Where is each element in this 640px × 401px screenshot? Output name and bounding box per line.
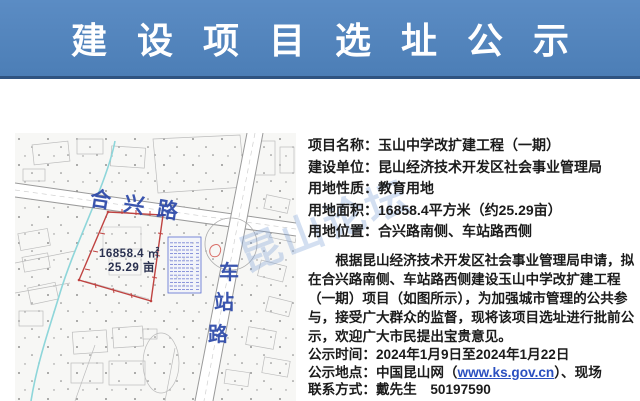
footer-value: 中国昆山网（ — [376, 365, 458, 380]
info-value: 昆山经济技术开发区社会事业管理局 — [378, 159, 602, 175]
paragraph-line: （一期）项目（如图所示），为加强城市管理的公共参 — [308, 289, 634, 308]
footer-label: 公示地点： — [308, 365, 376, 380]
paragraph-line: 与，接受广大群众的监督，现将该项目选址进行批前公 — [308, 308, 634, 327]
kunshan-gov-link[interactable]: www.ks.gov.cn — [458, 365, 555, 380]
info-value: 玉山中学改扩建工程（一期） — [378, 137, 560, 153]
info-value: 16858.4平方米（约25.29亩） — [378, 202, 562, 218]
info-row-land-area: 用地面积：16858.4平方米（约25.29亩） — [308, 200, 602, 222]
notice-paragraph: 根据昆山经济技术开发区社会事业管理局申请，拟 在合兴路南侧、车站路西侧建设玉山中… — [308, 251, 634, 346]
info-value: 合兴路南侧、车站路西侧 — [378, 223, 532, 239]
info-label: 用地位置： — [308, 223, 378, 239]
info-row-location: 用地位置：合兴路南侧、车站路西侧 — [308, 221, 602, 243]
footer-row-contact: 联系方式：戴先生 50197590 — [308, 381, 602, 399]
info-label: 项目名称： — [308, 137, 378, 153]
footer-value: 2024年1月9日至2024年1月22日 — [376, 347, 569, 362]
project-info-list: 项目名称：玉山中学改扩建工程（一期） 建设单位：昆山经济技术开发区社会事业管理局… — [308, 135, 602, 243]
footer-value: ）、现场 — [554, 365, 602, 380]
site-location-map: 16858.4 ㎡ 25.29 亩 合兴路 车 站 路 — [15, 133, 296, 401]
road-label-chezhan-char3: 路 — [208, 322, 229, 346]
info-row-builder: 建设单位：昆山经济技术开发区社会事业管理局 — [308, 157, 602, 179]
map-canvas: 16858.4 ㎡ 25.29 亩 合兴路 车 站 路 — [15, 133, 296, 401]
info-value: 教育用地 — [378, 180, 434, 196]
paragraph-line: 示，欢迎广大市民提出宝贵意见。 — [308, 327, 634, 346]
footer-row-place: 公示地点：中国昆山网（www.ks.gov.cn）、现场 — [308, 364, 602, 382]
parcel-area-m2-label: 16858.4 ㎡ — [99, 246, 160, 260]
notice-footer: 公示时间：2024年1月9日至2024年1月22日 公示地点：中国昆山网（www… — [308, 346, 602, 399]
info-label: 用地性质： — [308, 180, 378, 196]
footer-label: 公示时间： — [308, 347, 376, 362]
road-label-chezhan-char2: 站 — [214, 290, 234, 314]
road-label-chezhan-char1: 车 — [219, 260, 239, 284]
footer-label: 联系方式： — [308, 382, 376, 397]
paragraph-line: 在合兴路南侧、车站路西侧建设玉山中学改扩建工程 — [308, 270, 634, 289]
paragraph-line: 根据昆山经济技术开发区社会事业管理局申请，拟 — [308, 251, 634, 270]
map-coordinate-table — [168, 237, 201, 293]
notice-details: 项目名称：玉山中学改扩建工程（一期） 建设单位：昆山经济技术开发区社会事业管理局… — [308, 0, 640, 401]
info-row-land-use: 用地性质：教育用地 — [308, 178, 602, 200]
info-label: 建设单位： — [308, 159, 378, 175]
footer-value: 戴先生 50197590 — [376, 382, 491, 397]
footer-row-time: 公示时间：2024年1月9日至2024年1月22日 — [308, 346, 602, 364]
notice-page: 建设项目选址公示 — [0, 0, 640, 401]
info-row-project-name: 项目名称：玉山中学改扩建工程（一期） — [308, 135, 602, 157]
info-label: 用地面积： — [308, 202, 378, 218]
parcel-area-mu-label: 25.29 亩 — [108, 260, 155, 274]
